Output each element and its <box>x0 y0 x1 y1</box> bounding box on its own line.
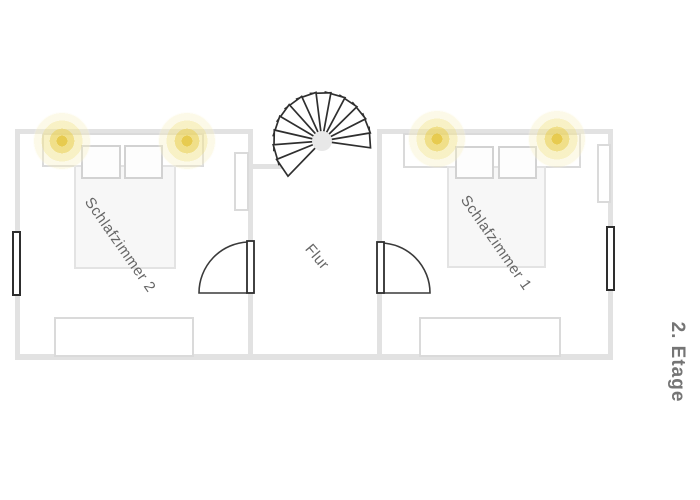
staircase-center-post <box>312 131 332 151</box>
floor-title: 2. Etage <box>666 322 688 403</box>
dresser <box>55 318 193 356</box>
pillow <box>82 146 120 178</box>
bed-headboard <box>43 134 203 166</box>
pillow <box>456 147 493 178</box>
wardrobe <box>235 153 248 210</box>
floor-plan-drawing <box>0 0 700 500</box>
window-icon <box>607 227 614 290</box>
door-icon <box>377 242 430 293</box>
door-icon <box>199 241 254 293</box>
pillow <box>499 147 536 178</box>
pillow <box>125 146 162 178</box>
wardrobe <box>598 145 610 202</box>
floor-plan: Schlafzimmer 2 Flur Schlafzimmer 1 2. Et… <box>0 0 700 500</box>
bedroom2-furniture <box>43 134 248 356</box>
spiral-staircase-icon <box>273 92 370 176</box>
window-icon <box>13 232 20 295</box>
dresser <box>420 318 560 356</box>
